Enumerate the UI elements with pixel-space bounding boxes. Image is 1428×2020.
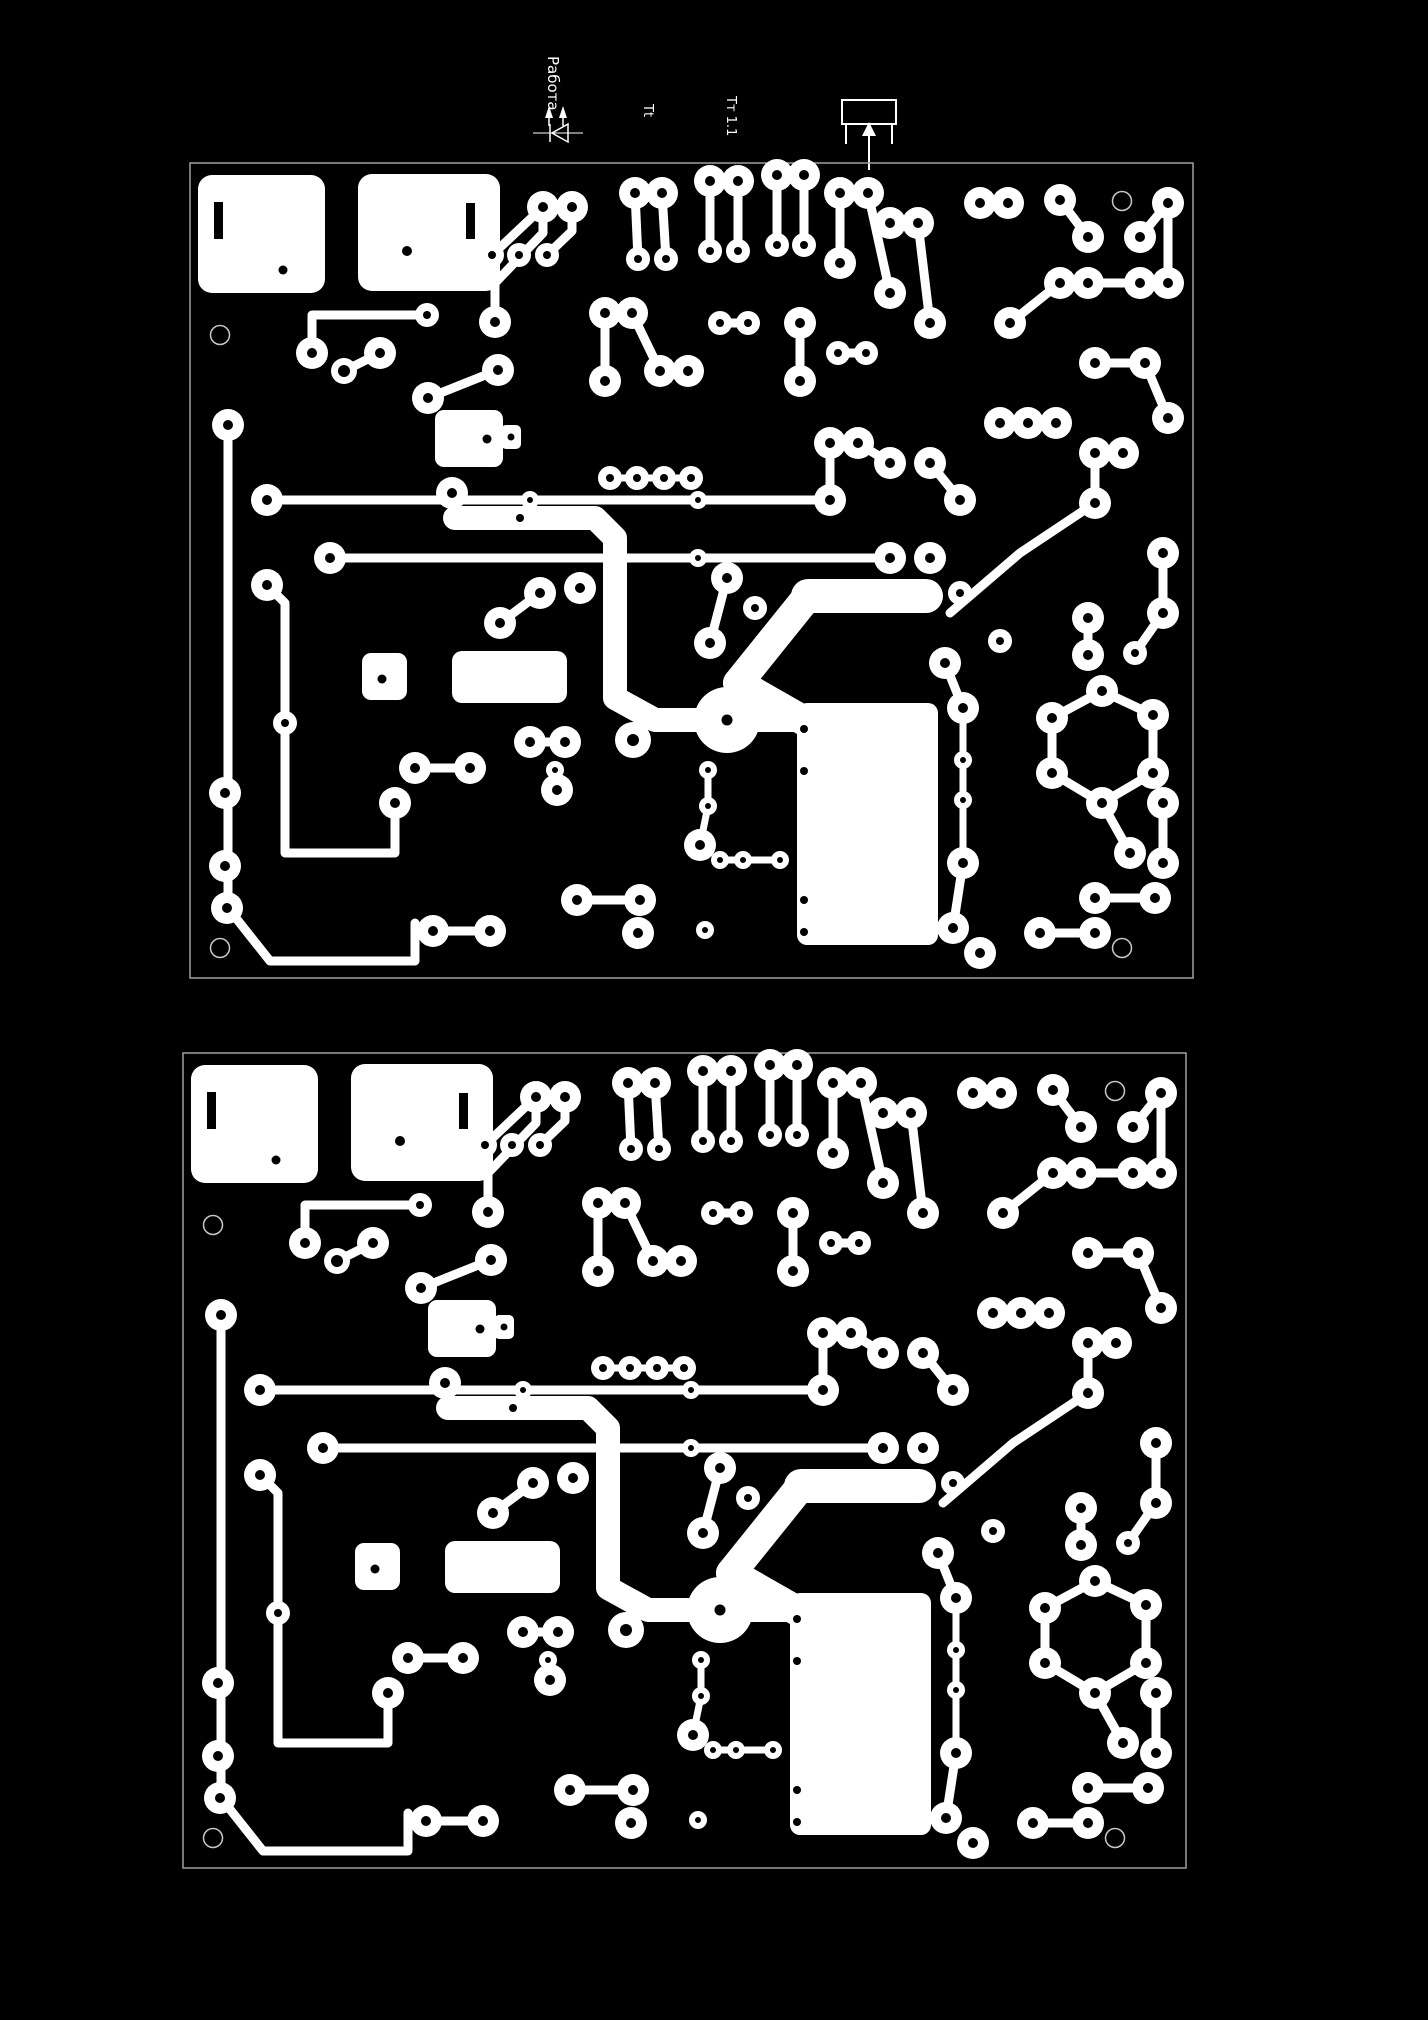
drill-hole (220, 788, 230, 798)
drill-hole (705, 638, 715, 648)
drill-hole (958, 703, 968, 713)
drill-hole (953, 1687, 959, 1693)
drill-hole (1044, 1308, 1054, 1318)
drill-hole (1141, 1600, 1151, 1610)
pad-drill-dot (501, 1324, 508, 1331)
drill-hole (825, 495, 835, 505)
pad-drill-dot (793, 1818, 801, 1826)
led-indicator-label: Работа (544, 56, 562, 111)
drill-hole (416, 1201, 424, 1209)
drill-hole (1151, 1498, 1161, 1508)
drill-hole (545, 1675, 555, 1685)
pad-slot (207, 1092, 216, 1129)
drill-hole (331, 1255, 343, 1267)
drill-hole (447, 488, 457, 498)
header-annotations: Работа Тt Тт 1.1 (533, 56, 896, 170)
drill-hole (375, 348, 385, 358)
drill-hole (744, 1494, 752, 1502)
drill-hole (918, 1348, 928, 1358)
pcb-boards (183, 159, 1193, 1868)
drill-hole (1090, 448, 1100, 458)
drill-hole (680, 1364, 688, 1372)
drill-hole (635, 895, 645, 905)
drill-hole (481, 1141, 489, 1149)
drill-hole (855, 1239, 863, 1247)
copper-trace (267, 585, 285, 723)
drill-hole (688, 1387, 694, 1393)
drill-hole (552, 767, 558, 773)
drill-hole (1076, 1168, 1086, 1178)
drill-hole (1083, 1783, 1093, 1793)
pad-drill-dot (800, 725, 808, 733)
drill-hole (885, 288, 895, 298)
drill-hole (918, 1208, 928, 1218)
drill-hole (599, 1364, 607, 1372)
drill-hole (648, 1256, 658, 1266)
drill-hole (941, 1813, 951, 1823)
pad-drill-dot (800, 928, 808, 936)
pad-drill-dot (483, 435, 492, 444)
drill-hole (653, 1364, 661, 1372)
drill-hole (996, 1088, 1006, 1098)
drill-hole (933, 1548, 943, 1558)
drill-hole (478, 1816, 488, 1826)
drill-hole (560, 1092, 570, 1102)
drill-hole (717, 857, 723, 863)
copper-trace (260, 1475, 278, 1613)
drill-hole (715, 1463, 725, 1473)
drill-hole (777, 857, 783, 863)
pad-drill-dot (793, 1657, 801, 1665)
drill-hole (493, 365, 503, 375)
drill-hole (1083, 1388, 1093, 1398)
drill-hole (1156, 1168, 1166, 1178)
drill-hole (1158, 798, 1168, 808)
drill-hole (1040, 1603, 1050, 1613)
drill-hole (1140, 358, 1150, 368)
drill-hole (1048, 1168, 1058, 1178)
drill-hole (1133, 1248, 1143, 1258)
pad-drill-dot (402, 246, 412, 256)
mounting-hole (1113, 939, 1132, 958)
drill-hole (488, 1508, 498, 1518)
drill-hole (705, 767, 711, 773)
drill-hole (846, 1328, 856, 1338)
pad-drill-dot (508, 434, 515, 441)
drill-hole (918, 1443, 928, 1453)
pad-slot (459, 1093, 468, 1129)
drill-hole (676, 1256, 686, 1266)
pad-drill-dot (279, 266, 288, 275)
component-pad (428, 1300, 496, 1357)
drill-hole (657, 188, 667, 198)
pcb-copy-1 (190, 159, 1193, 978)
drill-hole (213, 1678, 223, 1688)
drill-hole (383, 1688, 393, 1698)
pad-drill-dot (793, 1786, 801, 1794)
drill-hole (488, 251, 496, 259)
drill-hole (660, 474, 668, 482)
drill-hole (716, 319, 724, 327)
drill-hole (572, 895, 582, 905)
drill-hole (698, 1693, 704, 1699)
transformer-tap-label: Тт 1.1 (723, 95, 738, 136)
drill-hole (699, 1137, 707, 1145)
drill-hole (1156, 1303, 1166, 1313)
drill-hole (1040, 1658, 1050, 1668)
drill-hole (925, 553, 935, 563)
drill-hole (795, 376, 805, 386)
drill-hole (593, 1198, 603, 1208)
drill-hole (1097, 798, 1107, 808)
drill-hole (1083, 613, 1093, 623)
drill-hole (733, 1747, 739, 1753)
pad-drill-dot (395, 1136, 405, 1146)
drill-hole (628, 1785, 638, 1795)
drill-hole (1118, 1738, 1128, 1748)
drill-hole (1124, 1539, 1132, 1547)
drill-hole (1097, 686, 1107, 696)
drill-hole (878, 1108, 888, 1118)
drill-hole (799, 170, 809, 180)
drill-hole (770, 1747, 776, 1753)
drill-hole (698, 1657, 704, 1663)
drill-hole (338, 365, 350, 377)
drill-hole (722, 715, 733, 726)
drill-hole (1083, 1338, 1093, 1348)
drill-hole (486, 1255, 496, 1265)
drill-hole (1076, 1503, 1086, 1513)
drill-hole (1090, 928, 1100, 938)
drill-hole (687, 474, 695, 482)
drill-hole (960, 797, 966, 803)
drill-hole (1076, 1540, 1086, 1550)
drill-hole (274, 1609, 282, 1617)
drill-hole (688, 1445, 694, 1451)
drill-hole (995, 418, 1005, 428)
drill-hole (1125, 848, 1135, 858)
drill-hole (1148, 710, 1158, 720)
drill-hole (940, 658, 950, 668)
drill-hole (600, 308, 610, 318)
drill-hole (1048, 1085, 1058, 1095)
drill-hole (1090, 498, 1100, 508)
drill-hole (518, 1627, 528, 1637)
drill-hole (989, 1527, 997, 1535)
drill-hole (1135, 232, 1145, 242)
pad-drill-dot (800, 767, 808, 775)
drill-hole (600, 376, 610, 386)
drill-hole (878, 1443, 888, 1453)
led-symbol (533, 106, 583, 142)
drill-hole (545, 1657, 551, 1663)
drill-hole (535, 588, 545, 598)
drill-hole (683, 366, 693, 376)
drill-hole (1090, 358, 1100, 368)
drill-hole (695, 497, 701, 503)
drill-hole (1035, 928, 1045, 938)
heatsink-area (797, 703, 938, 945)
drill-hole (751, 604, 759, 612)
drill-hole (834, 349, 842, 357)
drill-hole (1083, 650, 1093, 660)
drill-hole (788, 1208, 798, 1218)
drill-hole (1163, 198, 1173, 208)
drill-hole (1163, 278, 1173, 288)
drill-hole (968, 1088, 978, 1098)
drill-hole (403, 1653, 413, 1663)
drill-hole (968, 1838, 978, 1848)
mounting-hole (211, 939, 230, 958)
drill-hole (727, 1137, 735, 1145)
drill-hole (325, 553, 335, 563)
drill-hole (740, 857, 746, 863)
drill-hole (1083, 278, 1093, 288)
drill-hole (1151, 1438, 1161, 1448)
drill-hole (800, 241, 808, 249)
component-pad (435, 410, 503, 467)
drill-hole (925, 458, 935, 468)
drill-hole (709, 1209, 717, 1217)
drill-hole (722, 573, 732, 583)
drill-hole (627, 1145, 635, 1153)
pcb-artwork-sheet: Работа Тt Тт 1.1 (0, 0, 1428, 2020)
copper-pour (445, 1541, 560, 1593)
drill-hole (1090, 893, 1100, 903)
drill-hole (390, 798, 400, 808)
drill-hole (620, 1198, 630, 1208)
trimmer-symbol (842, 100, 896, 170)
mounting-hole (204, 1829, 223, 1848)
drill-hole (1083, 1818, 1093, 1828)
drill-hole (1143, 1783, 1153, 1793)
drill-hole (536, 1141, 544, 1149)
drill-hole (1003, 198, 1013, 208)
drill-hole (1158, 548, 1168, 558)
drill-hole (655, 366, 665, 376)
pad-drill-dot (272, 1156, 281, 1165)
pcb-copy-2 (183, 1049, 1186, 1868)
drill-hole (988, 1308, 998, 1318)
drill-hole (698, 1066, 708, 1076)
mounting-hole (1106, 1829, 1125, 1848)
drill-hole (975, 198, 985, 208)
drill-hole (733, 176, 743, 186)
drill-hole (827, 1239, 835, 1247)
drill-hole (956, 589, 964, 597)
drill-hole (543, 251, 551, 259)
drill-hole (948, 923, 958, 933)
drill-hole (955, 495, 965, 505)
drill-hole (766, 1131, 774, 1139)
pad-drill-dot (476, 1325, 485, 1334)
copper-trace (285, 723, 395, 853)
drill-hole (633, 474, 641, 482)
drill-hole (560, 737, 570, 747)
drill-hole (368, 1238, 378, 1248)
drill-hole (1047, 768, 1057, 778)
drill-hole (525, 737, 535, 747)
pad-drill-dot (800, 896, 808, 904)
drill-hole (878, 1348, 888, 1358)
drill-hole (788, 1266, 798, 1276)
drill-hole (223, 420, 233, 430)
drill-hole (885, 458, 895, 468)
drill-hole (772, 170, 782, 180)
drill-hole (1023, 418, 1033, 428)
copper-pour (452, 651, 567, 703)
drill-hole (626, 1364, 634, 1372)
drill-hole (465, 763, 475, 773)
drill-hole (538, 202, 548, 212)
drill-hole (1158, 858, 1168, 868)
drill-hole (958, 858, 968, 868)
drill-hole (300, 1238, 310, 1248)
drill-hole (1131, 649, 1139, 657)
drill-hole (318, 1443, 328, 1453)
drill-hole (655, 1145, 663, 1153)
heatsink-area (790, 1593, 931, 1835)
drill-hole (515, 251, 523, 259)
drill-hole (828, 1078, 838, 1088)
copper-trace (1045, 1581, 1146, 1693)
drill-hole (630, 188, 640, 198)
drill-hole (835, 188, 845, 198)
drill-hole (627, 308, 637, 318)
drill-hole (1090, 1688, 1100, 1698)
drill-hole (737, 1209, 745, 1217)
drill-hole (281, 719, 289, 727)
drill-hole (948, 1385, 958, 1395)
drill-hole (885, 218, 895, 228)
drill-hole (490, 317, 500, 327)
drill-hole (710, 1747, 716, 1753)
component-heat-pad (351, 1064, 493, 1181)
drill-hole (528, 1478, 538, 1488)
drill-hole (825, 438, 835, 448)
drill-hole (627, 734, 639, 746)
drill-hole (458, 1653, 468, 1663)
drill-hole (1156, 1088, 1166, 1098)
mounting-hole (211, 326, 230, 345)
component-heat-pad (358, 174, 500, 291)
pad-drill-dot (793, 1615, 801, 1623)
drill-hole (853, 438, 863, 448)
drill-hole (222, 903, 232, 913)
drill-hole (410, 763, 420, 773)
drill-hole (878, 1178, 888, 1188)
drill-hole (633, 928, 643, 938)
drill-hole (553, 1627, 563, 1637)
drill-hole (1051, 418, 1061, 428)
drill-hole (1118, 448, 1128, 458)
drill-hole (949, 1479, 957, 1487)
drill-hole (620, 1624, 632, 1636)
drill-hole (215, 1793, 225, 1803)
drill-hole (1047, 713, 1057, 723)
mounting-hole (1113, 192, 1132, 211)
drill-hole (698, 1528, 708, 1538)
drill-hole (606, 474, 614, 482)
drill-hole (885, 553, 895, 563)
drill-hole (960, 757, 966, 763)
drill-hole (793, 1131, 801, 1139)
drill-hole (951, 1593, 961, 1603)
drill-hole (1055, 195, 1065, 205)
drill-hole (623, 1078, 633, 1088)
drill-hole (626, 1818, 636, 1828)
drill-hole (262, 580, 272, 590)
drill-hole (662, 255, 670, 263)
drill-hole (1111, 1338, 1121, 1348)
drill-hole (1016, 1308, 1026, 1318)
drill-hole (1151, 1748, 1161, 1758)
drill-hole (568, 1473, 578, 1483)
pcb-layout-canvas: Работа Тt Тт 1.1 (0, 0, 1428, 2020)
drill-hole (1090, 1576, 1100, 1586)
drill-hole (906, 1108, 916, 1118)
drill-hole (485, 926, 495, 936)
drill-hole (428, 926, 438, 936)
transformer-label: Тt (640, 103, 655, 117)
drill-hole (307, 348, 317, 358)
drill-hole (509, 1404, 517, 1412)
drill-hole (516, 514, 524, 522)
drill-hole (255, 1470, 265, 1480)
drill-hole (705, 803, 711, 809)
drill-hole (1128, 1168, 1138, 1178)
drill-hole (951, 1748, 961, 1758)
drill-hole (1028, 1818, 1038, 1828)
drill-hole (913, 218, 923, 228)
drill-hole (773, 241, 781, 249)
drill-hole (856, 1078, 866, 1088)
drill-hole (705, 176, 715, 186)
drill-hole (1083, 232, 1093, 242)
drill-hole (1151, 1688, 1161, 1698)
drill-hole (527, 497, 533, 503)
drill-hole (835, 258, 845, 268)
drill-hole (795, 318, 805, 328)
drill-hole (216, 1310, 226, 1320)
drill-hole (828, 1148, 838, 1158)
drill-hole (531, 1092, 541, 1102)
drill-hole (552, 785, 562, 795)
drill-hole (1163, 413, 1173, 423)
drill-hole (715, 1605, 726, 1616)
drill-hole (975, 948, 985, 958)
drill-hole (695, 555, 701, 561)
drill-hole (863, 188, 873, 198)
drill-hole (734, 247, 742, 255)
drill-hole (953, 1647, 959, 1653)
drill-hole (998, 1208, 1008, 1218)
drill-hole (818, 1385, 828, 1395)
drill-hole (695, 1817, 701, 1823)
drill-hole (695, 840, 705, 850)
pad-drill-dot (378, 675, 387, 684)
drill-hole (1141, 1658, 1151, 1668)
drill-hole (567, 202, 577, 212)
drill-hole (262, 495, 272, 505)
drill-hole (1055, 278, 1065, 288)
drill-hole (818, 1328, 828, 1338)
drill-hole (575, 583, 585, 593)
pad-slot (214, 202, 223, 239)
drill-hole (1148, 768, 1158, 778)
drill-hole (495, 618, 505, 628)
drill-hole (255, 1385, 265, 1395)
